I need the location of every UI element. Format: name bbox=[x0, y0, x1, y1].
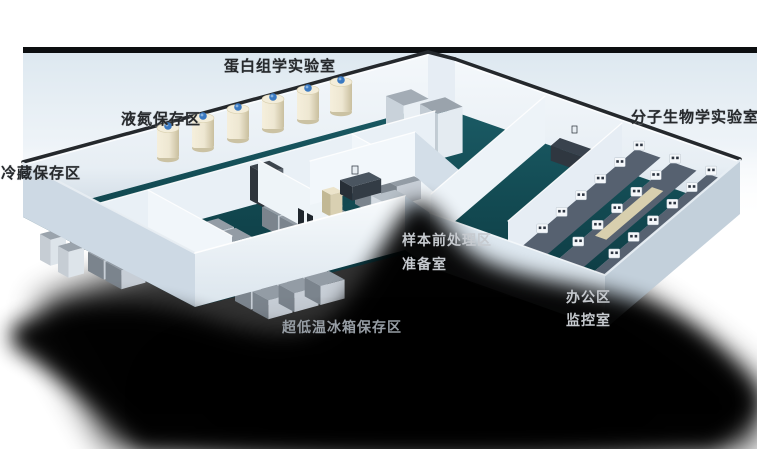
reagent-rack bbox=[667, 199, 678, 208]
reagent-rack bbox=[573, 237, 584, 246]
ln2-tank bbox=[330, 76, 352, 116]
ln2-tank bbox=[262, 93, 284, 133]
ln2-tank bbox=[227, 103, 249, 143]
reagent-rack bbox=[628, 232, 639, 241]
reagent-rack bbox=[650, 171, 661, 180]
label-sample-pretreatment-area: 样本前处理区 bbox=[402, 230, 492, 250]
reagent-rack bbox=[647, 216, 658, 225]
end-cabinet bbox=[58, 242, 84, 278]
reagent-rack bbox=[609, 249, 620, 258]
reagent-rack bbox=[634, 141, 645, 150]
lab-3d-floorplan: 蛋白组学实验室 液氮保存区 冷藏保存区 分子生物学实验室 样本前处理区 准备室 … bbox=[0, 0, 757, 449]
reagent-rack bbox=[595, 174, 606, 183]
label-ult-freezer-area: 超低温冰箱保存区 bbox=[282, 317, 402, 337]
reagent-rack bbox=[686, 183, 697, 192]
reagent-rack bbox=[592, 220, 603, 229]
cream-cabinet bbox=[322, 187, 342, 217]
label-liquid-nitrogen-area: 液氮保存区 bbox=[121, 108, 201, 129]
label-cold-storage-area: 冷藏保存区 bbox=[1, 162, 81, 183]
backdrop-edge bbox=[23, 47, 757, 53]
reagent-rack bbox=[556, 207, 567, 216]
reagent-rack bbox=[631, 187, 642, 196]
reagent-rack bbox=[706, 166, 717, 175]
ln2-tank bbox=[297, 84, 319, 124]
label-monitoring-room: 监控室 bbox=[566, 310, 611, 330]
label-proteomics-lab: 蛋白组学实验室 bbox=[224, 55, 336, 76]
reagent-rack bbox=[614, 158, 625, 167]
floorplan-render bbox=[0, 0, 757, 449]
reagent-rack bbox=[575, 191, 586, 200]
reagent-rack bbox=[537, 224, 548, 233]
reagent-rack bbox=[670, 154, 681, 163]
monitor bbox=[572, 126, 577, 133]
label-molecular-biology-lab: 分子生物学实验室 bbox=[631, 106, 757, 127]
reagent-rack bbox=[611, 204, 622, 213]
label-office-area: 办公区 bbox=[566, 287, 611, 307]
label-preparation-room: 准备室 bbox=[402, 254, 447, 274]
monitor bbox=[352, 166, 358, 174]
